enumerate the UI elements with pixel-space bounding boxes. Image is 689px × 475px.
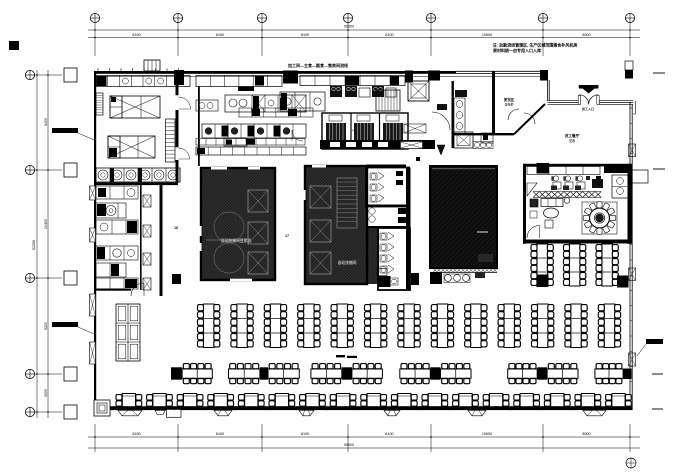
svg-text:8100: 8100	[216, 33, 224, 37]
svg-text:8150: 8150	[132, 33, 140, 37]
svg-text:8100: 8100	[385, 432, 393, 436]
svg-text:8500: 8500	[582, 33, 590, 37]
svg-text:9200: 9200	[44, 322, 48, 330]
svg-text:16: 16	[174, 226, 178, 230]
svg-text:59600: 59600	[344, 443, 354, 447]
svg-text:10400: 10400	[44, 219, 48, 229]
svg-text:自动扶梯间: 自动扶梯间	[338, 260, 357, 265]
svg-text:更衣区: 更衣区	[504, 97, 515, 102]
svg-text:堂食: 堂食	[569, 138, 576, 143]
svg-text:员工入口: 员工入口	[582, 106, 594, 111]
svg-text:59600: 59600	[344, 25, 354, 29]
svg-text:8100: 8100	[385, 33, 393, 37]
svg-text:17: 17	[285, 234, 289, 238]
svg-text:3000: 3000	[44, 389, 48, 397]
svg-text:员工餐厅: 员工餐厅	[565, 133, 580, 138]
svg-text:原材料统一由专用入口入库: 原材料统一由专用入口入库	[492, 47, 541, 53]
svg-text:52300: 52300	[32, 240, 36, 250]
svg-text:8100: 8100	[301, 33, 309, 37]
svg-text:注: 后勤流线管理区, 生产区域范围需含补风机房: 注: 后勤流线管理区, 生产区域范围需含补风机房	[493, 42, 578, 48]
svg-text:10650: 10650	[482, 432, 492, 436]
svg-text:含鞋柜: 含鞋柜	[504, 102, 513, 107]
svg-text:8100: 8100	[216, 432, 224, 436]
svg-text:加工间—主食—副食—售卖间流线: 加工间—主食—副食—售卖间流线	[287, 62, 348, 68]
svg-text:9200: 9200	[44, 118, 48, 126]
svg-text:自动扶梯间豆浆机: 自动扶梯间豆浆机	[221, 238, 252, 243]
svg-text:10650: 10650	[482, 33, 492, 37]
svg-text:8100: 8100	[301, 432, 309, 436]
svg-text:8150: 8150	[132, 432, 140, 436]
svg-text:8500: 8500	[582, 432, 590, 436]
